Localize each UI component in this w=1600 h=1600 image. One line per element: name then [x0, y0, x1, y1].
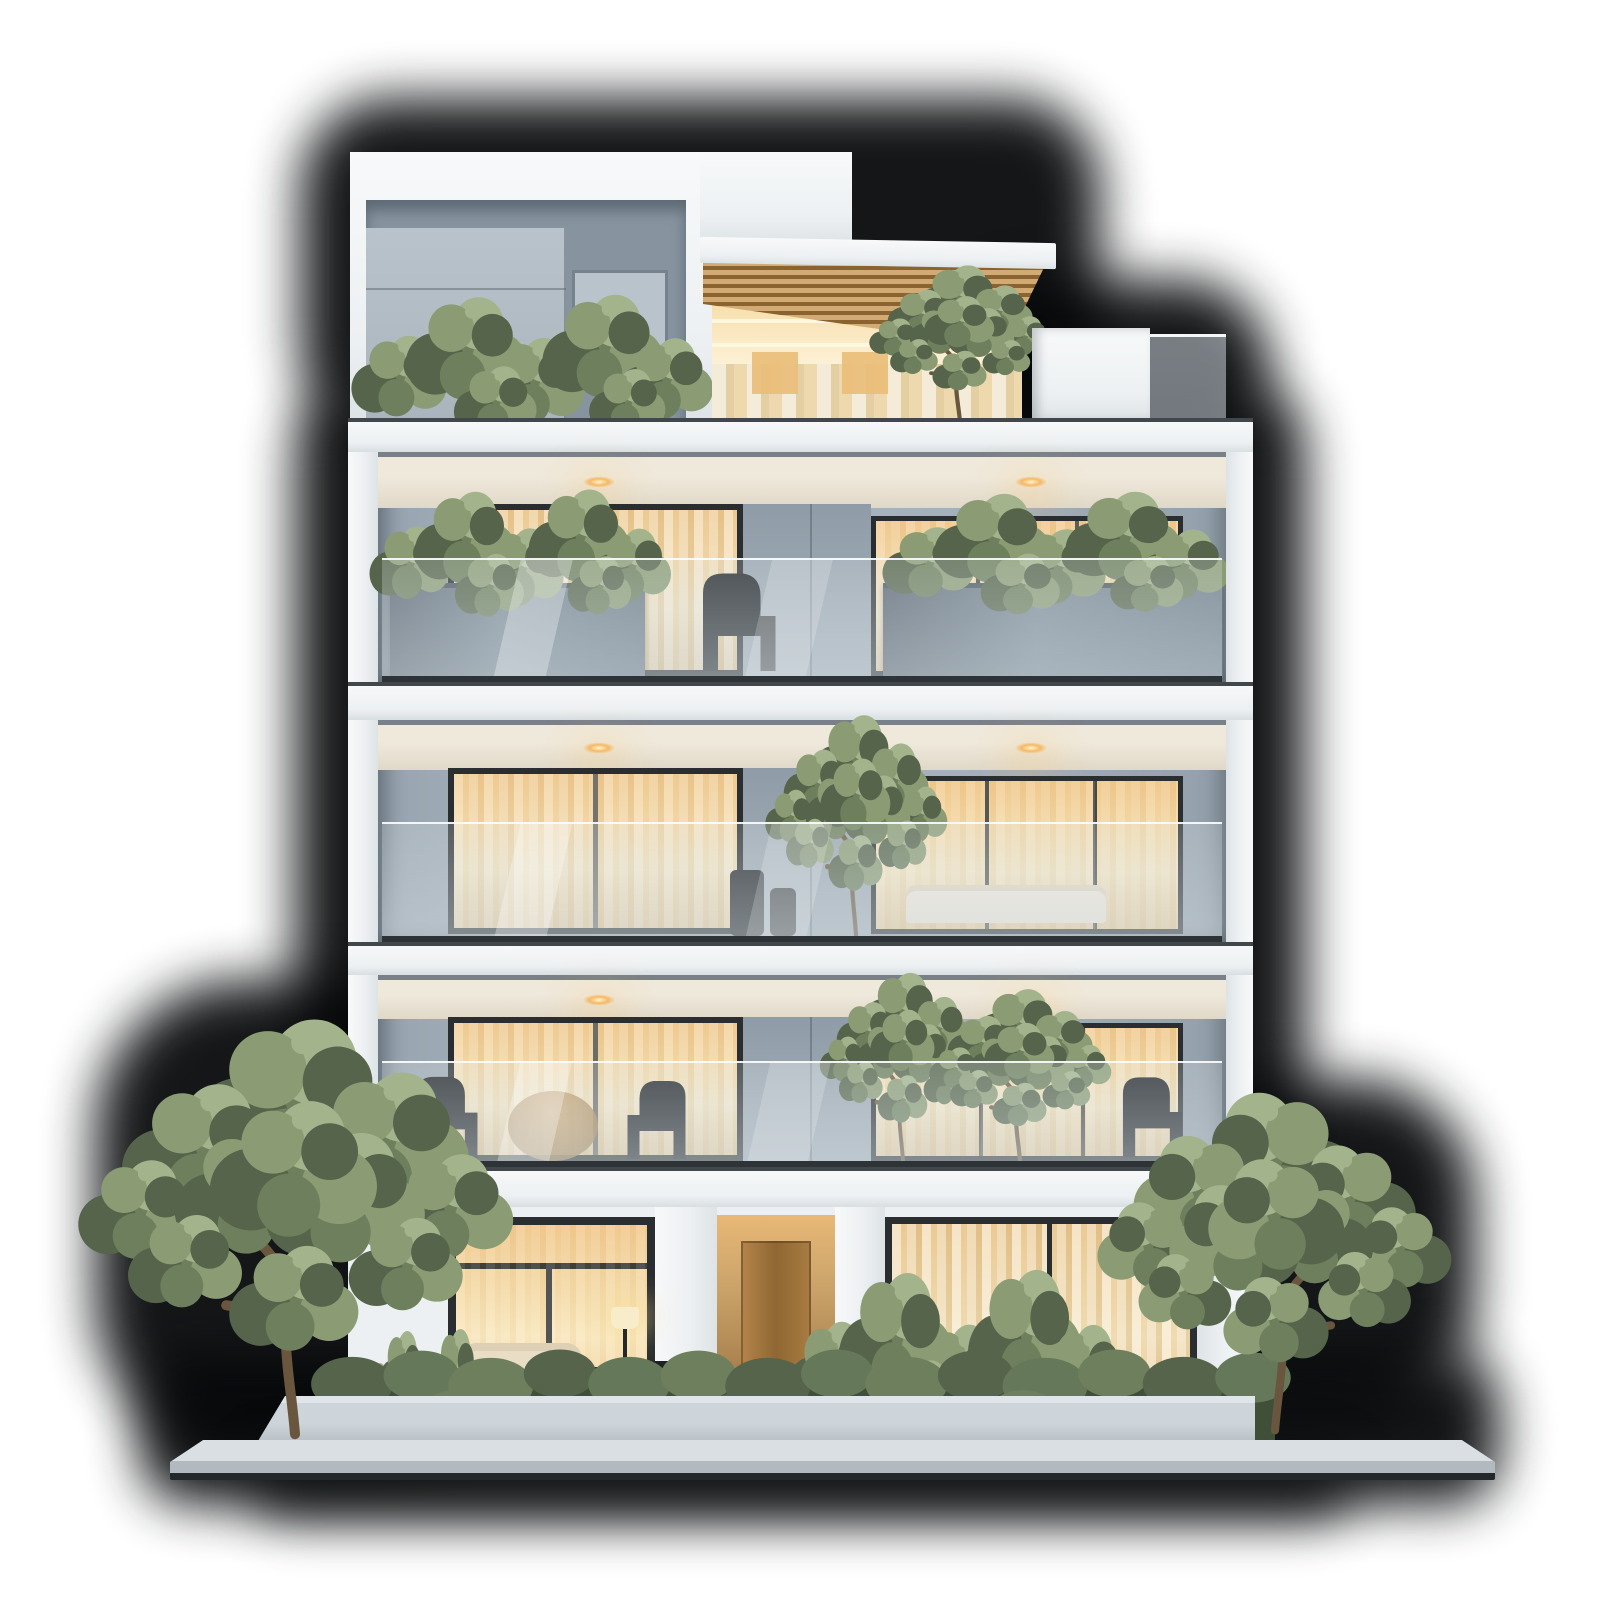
downlight [582, 742, 616, 754]
tree-left [60, 1010, 530, 1440]
pier-left [348, 720, 378, 942]
glass-railing [382, 822, 1222, 942]
glass-parapet [1150, 334, 1226, 422]
pier-right [1226, 452, 1253, 682]
floor-slab [348, 942, 1253, 975]
right-parapet [1032, 328, 1150, 422]
pier-right [1226, 720, 1253, 942]
glass-railing [382, 558, 1222, 682]
floor-slab [348, 682, 1253, 720]
roof-slab [348, 418, 1253, 452]
terrace-plant [900, 278, 1020, 424]
balcony-floor-1 [348, 452, 1253, 720]
sidewalk [170, 1440, 1495, 1480]
pergola-curtain-header [842, 352, 888, 394]
lamp-shade [611, 1307, 639, 1329]
downlight [582, 994, 616, 1006]
building-illustration [0, 0, 1600, 1600]
balcony-opening [378, 452, 1226, 682]
balcony-floor-2 [348, 720, 1253, 975]
roof-garden-shrubs [352, 272, 712, 422]
pergola-curtain-header [752, 352, 798, 394]
balcony-opening [378, 720, 1226, 942]
tree-right [1055, 1085, 1495, 1435]
penthouse-top-band [700, 152, 852, 244]
downlight [1014, 742, 1048, 754]
